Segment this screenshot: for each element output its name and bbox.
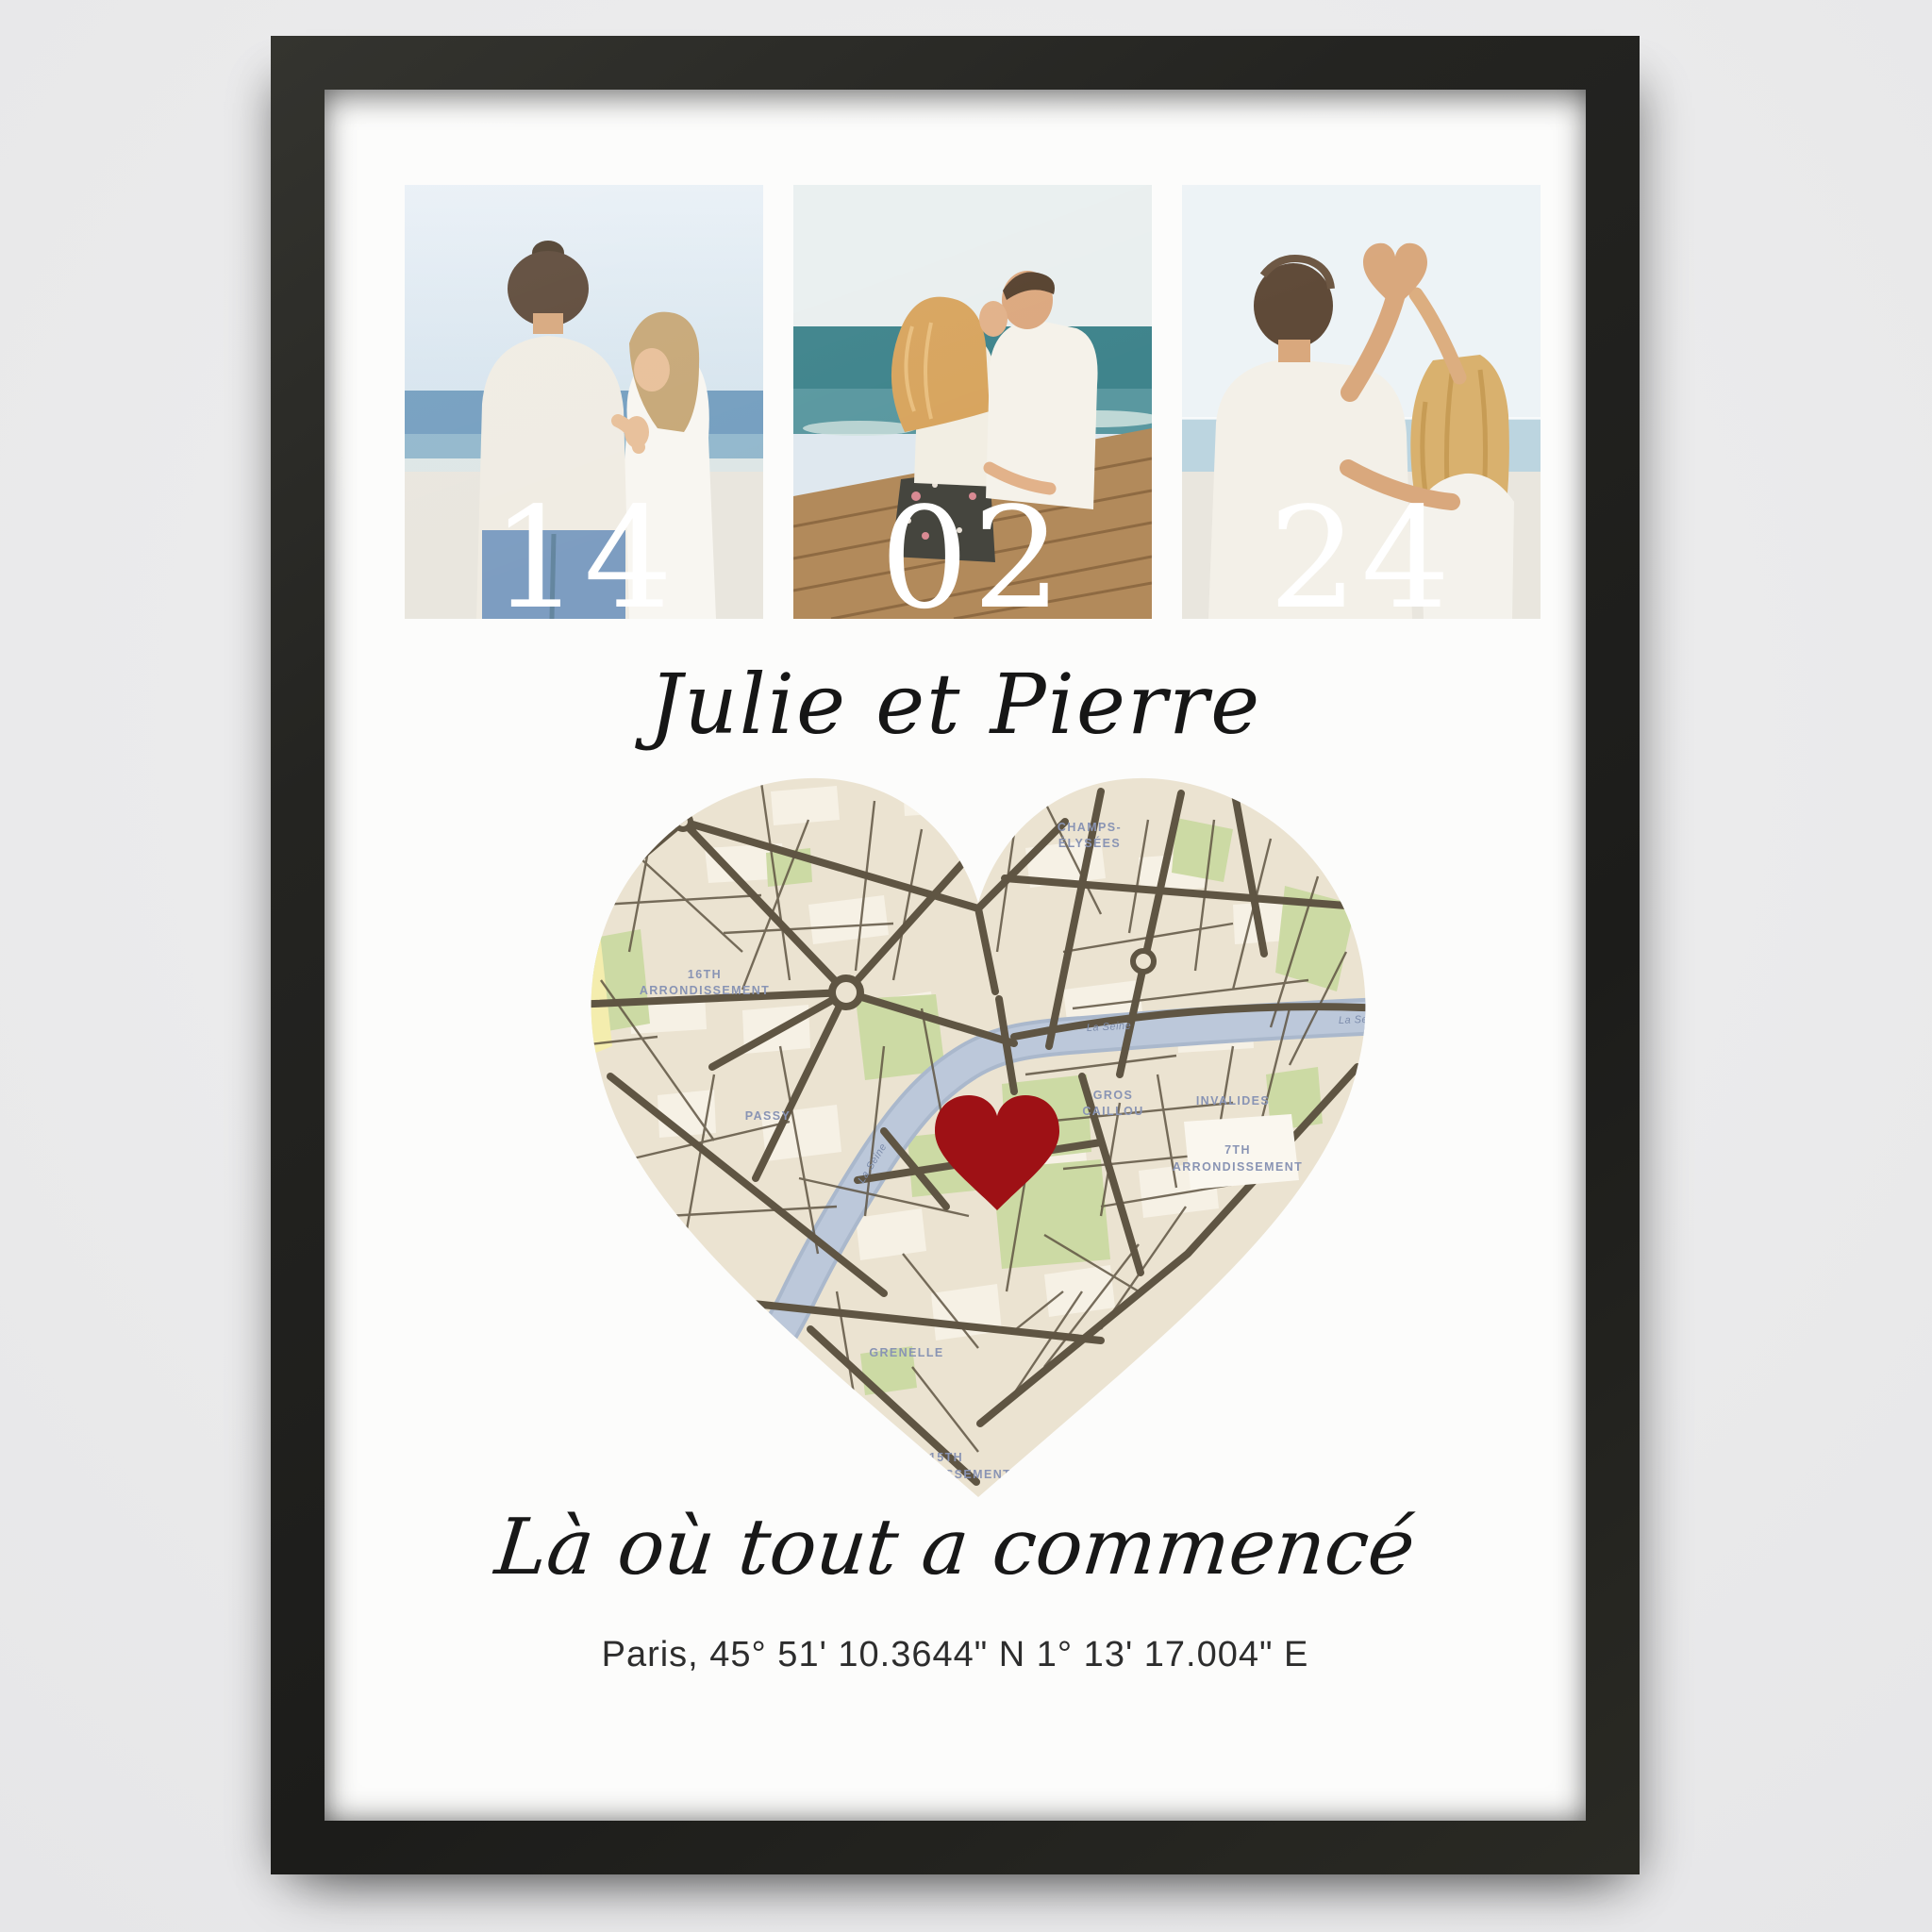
paris-map-heart: 16TH ARRONDISSEMENT PASSY CHAMPS- ÉLYSÉE… (573, 763, 1386, 1501)
heart-map: 16TH ARRONDISSEMENT PASSY CHAMPS- ÉLYSÉE… (573, 763, 1386, 1501)
product-photo: 14 (0, 0, 1932, 1932)
map-label-passy: PASSY (745, 1109, 791, 1123)
map-label-invalides: INVALIDES (1196, 1094, 1270, 1108)
photo-strip: 14 (405, 185, 1541, 619)
couple-photo-2: 02 (793, 185, 1152, 619)
couple-photo-3: 24 (1182, 185, 1541, 619)
svg-text:ARRONDISSEMENT: ARRONDISSEMENT (881, 1468, 1011, 1481)
map-label-15th: 15TH (929, 1451, 963, 1464)
date-day: 14 (491, 489, 676, 619)
river-label-1: La Seine (1087, 1021, 1132, 1034)
couple-names: Julie et Pierre (325, 656, 1586, 753)
svg-text:CAILLOU: CAILLOU (1082, 1105, 1143, 1118)
picture-frame: 14 (271, 36, 1640, 1874)
map-label-7th: 7TH (1224, 1143, 1251, 1157)
map-label-champs: CHAMPS- (1058, 821, 1122, 834)
map-label-grenelle: GRENELLE (869, 1346, 943, 1359)
map-label-16th: 16TH (688, 968, 722, 981)
map-label-gros-caillou: GROS (1093, 1089, 1133, 1102)
date-month: 02 (880, 489, 1065, 619)
river-label-2: La Seine (1339, 1013, 1384, 1026)
location-coordinates: Paris, 45° 51' 10.3644" N 1° 13' 17.004"… (325, 1635, 1586, 1675)
svg-text:ARRONDISSEMENT: ARRONDISSEMENT (640, 984, 770, 997)
tagline-script: Là où tout a commencé (325, 1503, 1586, 1592)
date-year: 24 (1269, 489, 1454, 619)
svg-text:ARRONDISSEMENT: ARRONDISSEMENT (1173, 1160, 1303, 1174)
couple-photo-1: 14 (405, 185, 763, 619)
poster-mat: 14 (325, 90, 1586, 1821)
svg-text:ÉLYSÉES: ÉLYSÉES (1058, 836, 1121, 850)
poster-art: 14 (325, 90, 1586, 1821)
